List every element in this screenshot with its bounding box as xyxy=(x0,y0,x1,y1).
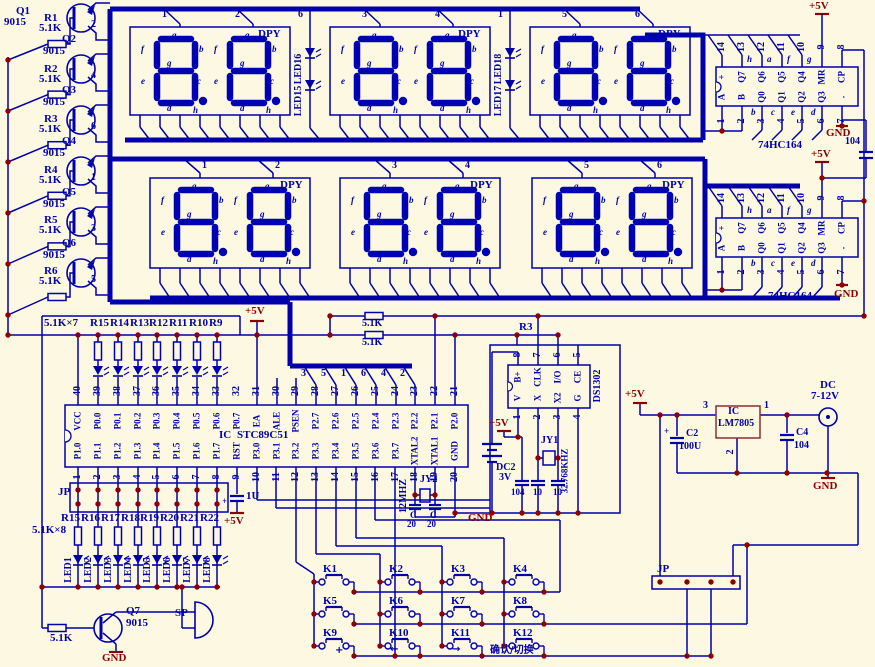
segment-letter: h xyxy=(193,106,198,115)
pin-label: Q2 xyxy=(798,91,807,103)
segment-letter: f xyxy=(341,45,344,54)
decimal-point xyxy=(482,248,490,256)
key-label: K8 xyxy=(513,596,527,607)
key-contact xyxy=(471,579,477,585)
junction-dot xyxy=(377,611,382,616)
resistor xyxy=(194,527,201,545)
segment-letter: f xyxy=(614,45,617,54)
polarity-mark: + xyxy=(222,497,227,506)
pin-number: 11 xyxy=(777,193,787,202)
pin-number: 1 xyxy=(717,270,727,275)
led-icon xyxy=(192,555,202,564)
junction-dot xyxy=(839,282,844,287)
junction-dot xyxy=(541,653,546,658)
power-label: GND xyxy=(813,481,837,492)
model-label: 9015 xyxy=(126,618,148,629)
segment-letter: f xyxy=(141,45,144,54)
resistor-label: R3 xyxy=(519,322,532,333)
resistor-value: 5.1K xyxy=(39,225,61,236)
pin-number: 38 xyxy=(113,386,123,396)
jack-range: 7-12V xyxy=(811,391,839,402)
pin-label: EA xyxy=(253,415,262,428)
segment-letter: f xyxy=(541,45,544,54)
pin-number: 39 xyxy=(93,386,103,396)
pin-number: 4 xyxy=(777,119,787,124)
junction-dot xyxy=(819,175,824,180)
pin-label: Q7 xyxy=(738,222,747,234)
resistor xyxy=(95,527,102,545)
transistor-label: Q4 xyxy=(62,136,76,147)
pin-label: Q6 xyxy=(758,222,767,234)
segment-letter: g xyxy=(240,59,245,68)
pin-number: 3 xyxy=(703,401,708,411)
junction-dot xyxy=(674,412,679,417)
led-label: LED1 xyxy=(64,557,74,583)
junction-dot xyxy=(417,653,422,658)
junction-dot xyxy=(351,653,356,658)
segment-letter: e xyxy=(351,228,355,237)
junction-dot xyxy=(657,412,662,417)
pin-number: 2 xyxy=(275,161,280,171)
pin-number: 4 xyxy=(435,10,440,20)
junction-dot xyxy=(515,434,520,439)
pin-number: 11 xyxy=(272,472,282,481)
dpy-label: DPY xyxy=(470,180,493,191)
segment-letter: b xyxy=(399,45,404,54)
dpy-label: DPY xyxy=(662,180,685,191)
pin-label: XTAL1 xyxy=(431,437,440,466)
junction-dot xyxy=(719,128,724,133)
resistor-value: 5.1K xyxy=(50,633,72,644)
pin-label: CLK xyxy=(534,367,543,387)
led-label: LED17 xyxy=(494,86,504,117)
pin-number: 2 xyxy=(93,475,103,480)
segment-letter: a xyxy=(455,182,460,191)
key-contact xyxy=(319,611,325,617)
led-icon xyxy=(192,366,202,375)
resistor-label: R15 xyxy=(90,318,109,329)
key-label: K9 xyxy=(323,628,337,639)
segment-letter: d xyxy=(811,108,816,117)
model-label: 9015 xyxy=(43,199,65,210)
cap-value: 100U xyxy=(679,442,701,452)
junction-dot xyxy=(351,589,356,594)
junction-dot xyxy=(174,332,179,337)
key-label: K3 xyxy=(451,564,465,575)
transistor-label: Q5 xyxy=(62,187,76,198)
jp-header xyxy=(70,483,228,512)
crystal-freq: 12MHZ xyxy=(399,479,409,513)
pin-label: P2.2 xyxy=(411,413,420,430)
pin-number: 1 xyxy=(764,401,769,411)
junction-dot xyxy=(535,313,540,318)
junction-dot xyxy=(734,470,739,475)
pin-number: 5 xyxy=(562,10,567,20)
junction-dot xyxy=(179,584,184,589)
key-label: K11 xyxy=(451,628,470,639)
model-label: 9015 xyxy=(43,148,65,159)
decimal-point xyxy=(672,97,680,105)
pin-number: 3 xyxy=(757,270,767,275)
key-contact xyxy=(447,611,453,617)
pin-label: Q1 xyxy=(778,91,787,103)
led-label: LED3 xyxy=(104,557,114,583)
resistor-label: R18 xyxy=(121,513,140,524)
junction-dot xyxy=(501,579,506,584)
pin-number: 3 xyxy=(757,119,767,124)
pin-number: 9 xyxy=(817,196,827,201)
cap-value: 10 xyxy=(553,488,562,497)
led-icon xyxy=(133,366,143,375)
segment-letter: b xyxy=(292,196,297,205)
pin-number: 4 xyxy=(133,475,143,480)
ic-name: STC89C51 xyxy=(237,430,288,441)
pin-label: P1.0 xyxy=(74,443,83,460)
pin-label: I/O xyxy=(554,370,563,383)
decimal-point xyxy=(399,97,407,105)
junction-dot xyxy=(174,501,179,506)
decimal-point xyxy=(409,248,417,256)
pin-number: 9 xyxy=(232,475,242,480)
junction-dot xyxy=(135,332,140,337)
pin-number: 33 xyxy=(212,386,222,396)
junction-dot xyxy=(452,332,457,337)
pin-label: MR xyxy=(818,70,827,85)
crystal-label: JY2 xyxy=(420,475,437,485)
pin-number: 10 xyxy=(797,42,807,52)
pin-label: P2.3 xyxy=(392,413,401,430)
pin-number: 2 xyxy=(737,119,747,124)
resistor xyxy=(174,342,181,360)
segment-letter: b xyxy=(482,196,487,205)
pin-label: Q2 xyxy=(798,242,807,254)
junction-dot xyxy=(535,455,540,460)
pin-label: P3.5 xyxy=(352,443,361,460)
segment-letter: d xyxy=(367,104,372,113)
pin-label: Q0 xyxy=(758,91,767,103)
segment-letter: e xyxy=(214,77,218,86)
segment-letter: h xyxy=(747,55,752,64)
resistor xyxy=(48,294,66,301)
resistor-label: R14 xyxy=(110,318,129,329)
junction-dot xyxy=(174,487,179,492)
segment-letter: c xyxy=(597,77,601,86)
wire-number: 2 xyxy=(91,20,96,30)
pin-label: P0.0 xyxy=(94,413,103,430)
pin-number: 8 xyxy=(837,196,847,201)
junction-dot xyxy=(439,579,444,584)
pin-number: 3 xyxy=(362,10,367,20)
segment-letter: f xyxy=(424,196,427,205)
junction-dot xyxy=(115,501,120,506)
junction-dot xyxy=(115,584,120,589)
pin-label: GND xyxy=(451,441,460,461)
wire-number: 2 xyxy=(400,369,405,379)
pin-label: P1.3 xyxy=(134,443,143,460)
segment-letter: d xyxy=(567,104,572,113)
pin-label: RST xyxy=(233,442,242,460)
segment-letter: g xyxy=(440,59,445,68)
pin-label: P1.1 xyxy=(94,443,103,460)
key-contact xyxy=(343,579,349,585)
resistor xyxy=(95,342,102,360)
resistor xyxy=(115,342,122,360)
pin-number: 12 xyxy=(757,42,767,52)
junction-dot xyxy=(432,313,437,318)
cap-value: 104 xyxy=(845,137,860,147)
pin-label: P3.0 xyxy=(253,443,262,460)
pin-number: 7 xyxy=(533,353,543,358)
model-label: 9015 xyxy=(4,17,26,28)
pin-label: P0.3 xyxy=(153,413,162,430)
pin-number: 5 xyxy=(573,353,583,358)
segment-letter: b xyxy=(219,196,224,205)
pin-number: 13 xyxy=(737,193,747,203)
junction-dot xyxy=(174,584,179,589)
junction-dot xyxy=(95,332,100,337)
segment-letter: c xyxy=(599,228,603,237)
junction-dot xyxy=(214,332,219,337)
led-label: LED5 xyxy=(143,557,153,583)
resistor xyxy=(194,342,201,360)
cap-label: C2 xyxy=(686,429,698,439)
junction-dot xyxy=(744,542,749,547)
junction-dot xyxy=(479,653,484,658)
junction-dot xyxy=(541,621,546,626)
segment-letter: b xyxy=(599,45,604,54)
pin-label: CP xyxy=(838,71,847,83)
resistor-value: 5.1K xyxy=(362,338,382,348)
pin-number: 7 xyxy=(837,119,847,124)
resistor-label: R15 xyxy=(61,513,80,524)
segment-letter: a xyxy=(245,31,250,40)
pin-number: 7 xyxy=(837,270,847,275)
pin-label: G xyxy=(574,394,583,401)
pin-number: 8 xyxy=(212,475,222,480)
junction-dot xyxy=(154,332,159,337)
key-label: K6 xyxy=(389,596,403,607)
pin-number: 1 xyxy=(162,10,167,20)
segment-letter: f xyxy=(787,55,790,64)
pin-label: P3.2 xyxy=(292,443,301,460)
junction-dot xyxy=(154,501,159,506)
junction-dot xyxy=(75,584,80,589)
key-annotation: ← xyxy=(390,645,398,655)
segment-letter: a xyxy=(172,31,177,40)
pin-label: . xyxy=(838,247,847,249)
segment-letter: e xyxy=(791,259,795,268)
decimal-point xyxy=(674,248,682,256)
pin-number: 35 xyxy=(172,386,182,396)
junction-dot xyxy=(541,589,546,594)
pin-label: P1.4 xyxy=(153,443,162,460)
pin-label: + xyxy=(718,74,727,79)
segment-letter: e xyxy=(791,108,795,117)
header-label: JP xyxy=(657,564,669,575)
resistor-label: R12 xyxy=(149,318,168,329)
junction-dot xyxy=(684,579,689,584)
resistor-label: R17 xyxy=(101,513,120,524)
segment-letter: b xyxy=(272,45,277,54)
pin-number: 10 xyxy=(252,472,262,482)
pin-label: Q4 xyxy=(798,71,807,83)
pin-number: 40 xyxy=(73,386,83,396)
pin-number: 5 xyxy=(797,119,807,124)
segment-letter: f xyxy=(787,206,790,215)
pin-number: 25 xyxy=(371,386,381,396)
pin-number: 14 xyxy=(717,193,727,203)
pin-label: P0.1 xyxy=(114,413,123,430)
key-annotation: 确认/切换 xyxy=(490,646,534,656)
segment-letter: c xyxy=(670,77,674,86)
segment-letter: g xyxy=(807,55,812,64)
resistor xyxy=(154,342,161,360)
segment-letter: b xyxy=(674,196,679,205)
segment-letter: e xyxy=(543,228,547,237)
wire-number: 3 xyxy=(91,224,96,234)
led-label: LED16 xyxy=(294,54,304,85)
junction-dot xyxy=(708,579,713,584)
segment-letter: d xyxy=(240,104,245,113)
power-label: +5V xyxy=(489,418,509,429)
wire-number: 5 xyxy=(321,369,326,379)
transistor-label: Q6 xyxy=(62,238,76,249)
pin-number: 8 xyxy=(837,45,847,50)
junction-dot xyxy=(194,584,199,589)
pin-number: 3 xyxy=(392,161,397,171)
pin-number: 6 xyxy=(553,353,563,358)
junction-dot xyxy=(95,487,100,492)
pin-number: 21 xyxy=(450,386,460,396)
key-contact xyxy=(509,611,515,617)
decimal-point xyxy=(472,97,480,105)
pin-number: 16 xyxy=(371,472,381,482)
group-title: 5.1K×8 xyxy=(32,525,66,536)
segment-letter: f xyxy=(616,196,619,205)
pin-number: 13 xyxy=(311,472,321,482)
junction-dot xyxy=(351,621,356,626)
segment-letter: a xyxy=(192,182,197,191)
ic-name: DS1302 xyxy=(593,370,603,403)
segment-letter: h xyxy=(666,106,671,115)
segment-letter: a xyxy=(645,31,650,40)
key-contact xyxy=(533,579,539,585)
pin-label: P2.7 xyxy=(312,413,321,430)
pin-label: P1.6 xyxy=(193,443,202,460)
led-icon xyxy=(172,555,182,564)
segment-letter: b xyxy=(472,45,477,54)
segment-letter: e xyxy=(424,228,428,237)
junction-dot xyxy=(327,313,332,318)
pin-label: XTAL2 xyxy=(411,437,420,466)
transistor-label: Q3 xyxy=(62,85,76,96)
resistor-label: R19 xyxy=(140,513,159,524)
key-label: K7 xyxy=(451,596,465,607)
pin-label: P2.6 xyxy=(332,413,341,430)
junction-dot xyxy=(95,584,100,589)
junction-dot xyxy=(5,312,10,317)
pin-label: PSEN xyxy=(292,409,301,432)
pin-label: P0.7 xyxy=(233,413,242,430)
pin-number: 3 xyxy=(553,415,563,420)
resistor-label: R10 xyxy=(189,318,208,329)
junction-dot xyxy=(75,501,80,506)
pin-label: B xyxy=(738,94,747,100)
segment-letter: h xyxy=(393,106,398,115)
pin-number: 31 xyxy=(252,386,262,396)
pin-number: 28 xyxy=(311,386,321,396)
junction-dot xyxy=(684,653,689,658)
model-label: 9015 xyxy=(43,97,65,108)
junction-dot xyxy=(194,501,199,506)
pin-label: ALE xyxy=(273,412,282,431)
pin-label: P1.2 xyxy=(114,443,123,460)
junction-dot xyxy=(824,470,829,475)
pin-label: P0.4 xyxy=(173,413,182,430)
junction-dot xyxy=(377,643,382,648)
decimal-point xyxy=(272,97,280,105)
pin-number: 12 xyxy=(757,193,767,203)
cap-value: 20 xyxy=(407,520,416,529)
pin-number: 1 xyxy=(498,10,503,20)
ic-notch-icon xyxy=(716,233,721,243)
segment-letter: h xyxy=(595,257,600,266)
resistor-value: 5.1K xyxy=(362,319,382,329)
crystal-label: JY1 xyxy=(541,436,558,446)
junction-dot xyxy=(75,332,80,337)
pin-number: 9 xyxy=(817,45,827,50)
pin-number: 37 xyxy=(133,386,143,396)
segment-letter: h xyxy=(286,257,291,266)
led-icon xyxy=(305,48,315,57)
key-annotation: + xyxy=(335,646,343,656)
key-contact xyxy=(471,611,477,617)
junction-dot xyxy=(535,510,540,515)
resistor xyxy=(48,625,66,632)
segment-letter: b xyxy=(601,196,606,205)
pin-number: 2 xyxy=(737,270,747,275)
pin-label: Q6 xyxy=(758,71,767,83)
key-contact xyxy=(343,643,349,649)
wire-number: 1 xyxy=(91,173,96,183)
key-label: K2 xyxy=(389,564,403,575)
key-contact xyxy=(319,643,325,649)
transistor-label: Q2 xyxy=(62,34,76,45)
junction-dot xyxy=(115,332,120,337)
junction-dot xyxy=(501,611,506,616)
resistor xyxy=(214,342,221,360)
segment-letter: c xyxy=(290,228,294,237)
pin-label: P3.6 xyxy=(372,443,381,460)
junction-dot xyxy=(214,584,219,589)
pin-label: P0.2 xyxy=(134,413,143,430)
segment-letter: b xyxy=(409,196,414,205)
key-contact xyxy=(385,611,391,617)
pin-number: 8 xyxy=(513,353,523,358)
resistor-label: R13 xyxy=(130,318,149,329)
pin-number: 15 xyxy=(351,472,361,482)
pin-label: X2 xyxy=(554,393,563,404)
cap-value: 1U xyxy=(246,491,259,502)
segment-letter: g xyxy=(807,206,812,215)
pin-number: 4 xyxy=(573,415,583,420)
model-label: 9015 xyxy=(43,250,65,261)
segment-letter: f xyxy=(543,196,546,205)
segment-letter: d xyxy=(440,104,445,113)
pin-label: P2.5 xyxy=(352,413,361,430)
junction-dot xyxy=(194,487,199,492)
segment-letter: e xyxy=(141,77,145,86)
